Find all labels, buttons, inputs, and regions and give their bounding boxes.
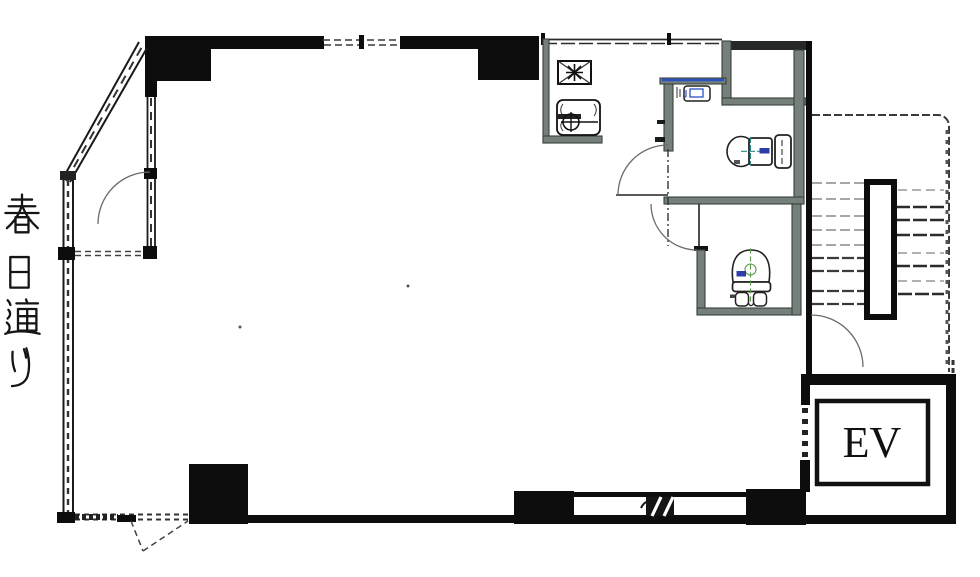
svg-text:EV: EV (843, 418, 902, 467)
